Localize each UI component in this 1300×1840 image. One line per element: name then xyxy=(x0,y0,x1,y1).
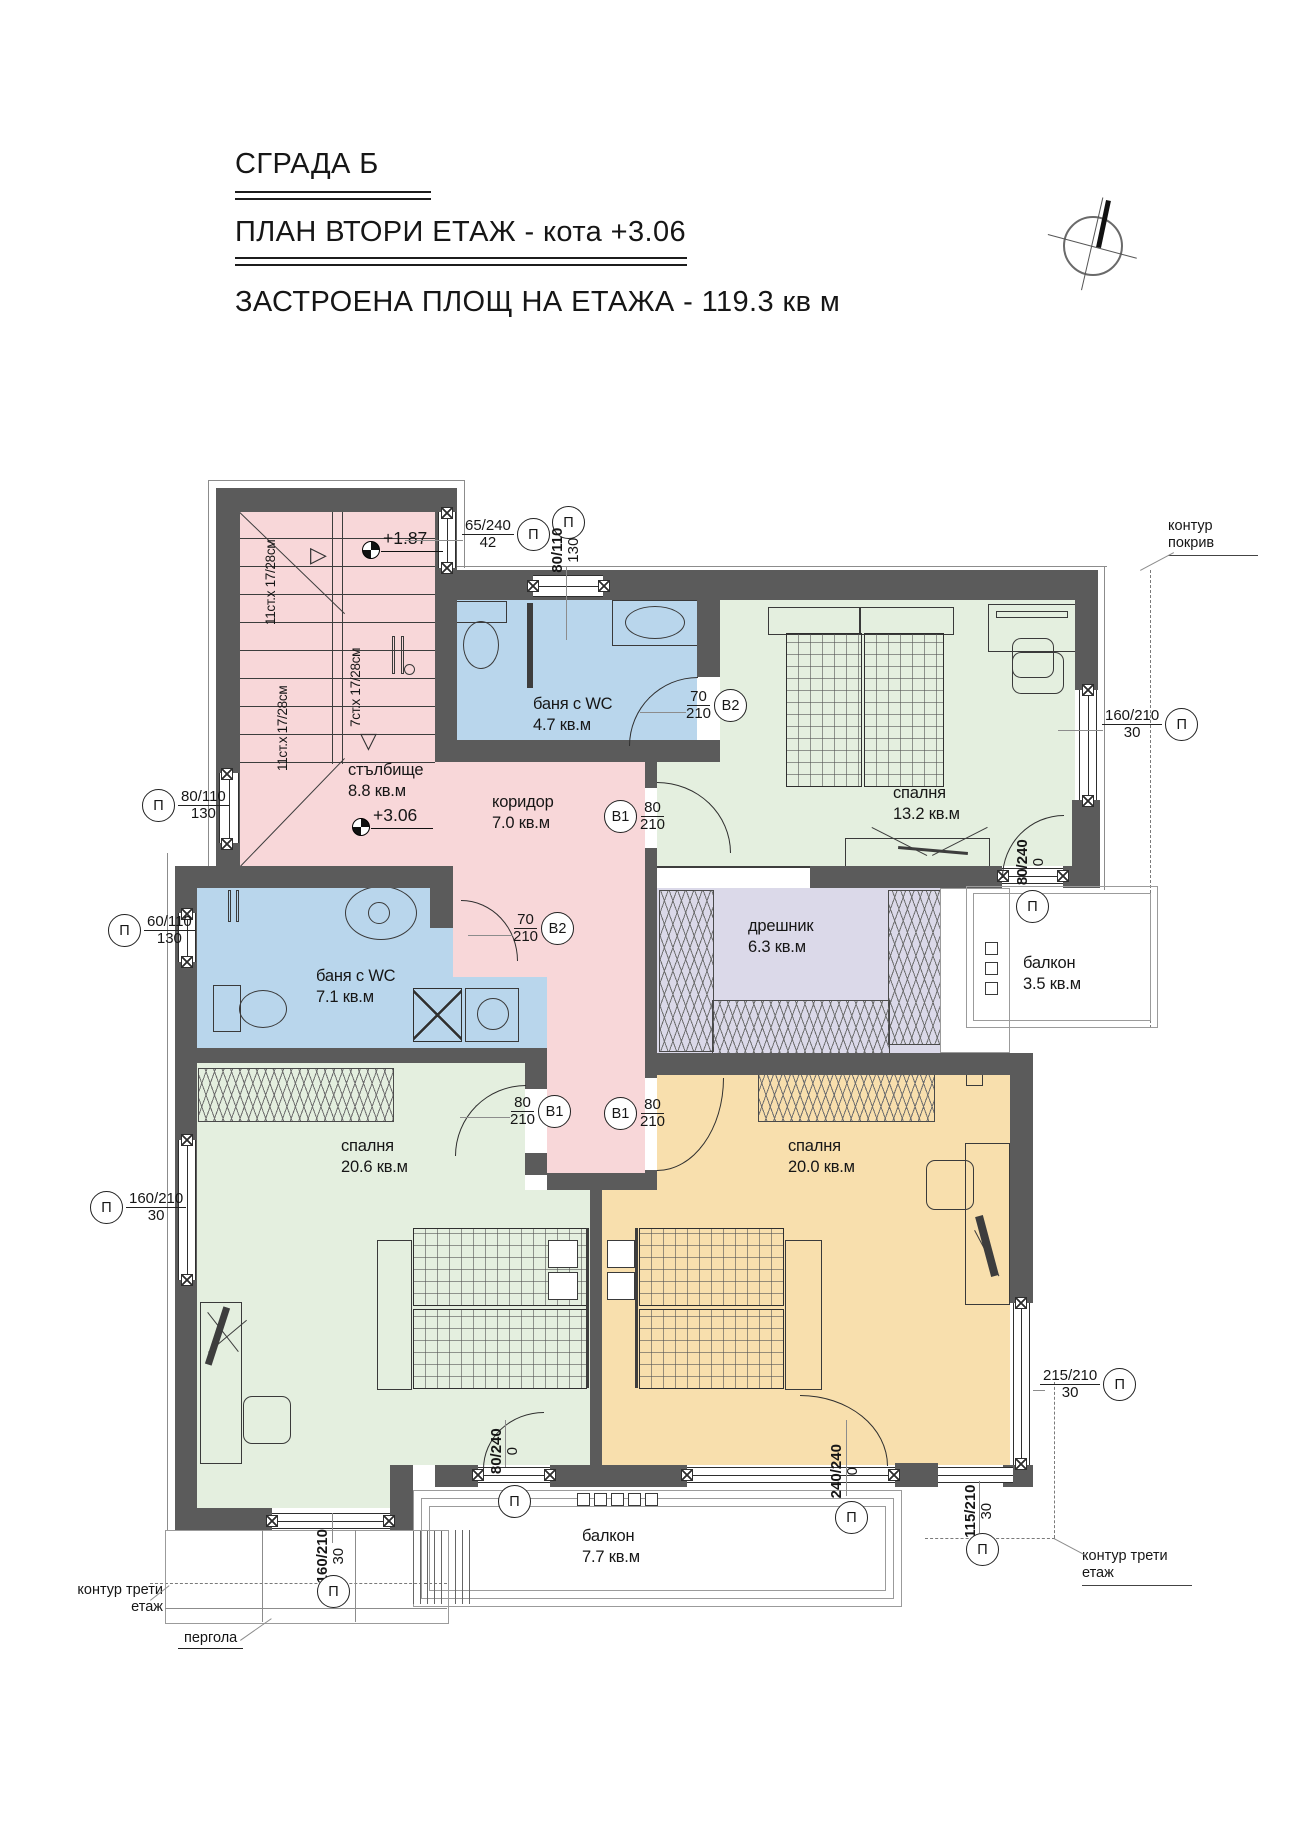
pillow xyxy=(607,1272,635,1300)
leader xyxy=(1058,730,1103,731)
mullion-box xyxy=(441,562,453,574)
sink-basin xyxy=(625,606,685,639)
elevation-marker-icon xyxy=(362,541,380,559)
opening-symbol-80-240-bottom: П xyxy=(498,1485,531,1518)
mullion-box xyxy=(181,1134,193,1146)
room-label-bedroom-right: спалня20.0 кв.м xyxy=(788,1136,855,1177)
pergola-post xyxy=(628,1493,641,1506)
opening-label-80-110-left: 80/110130 П xyxy=(142,789,229,822)
headboard xyxy=(635,1228,638,1388)
wardrobe xyxy=(198,1068,394,1122)
toilet-tank xyxy=(455,601,507,623)
pergola-post xyxy=(577,1493,590,1506)
room-label-balcony-bottom: балкон7.7 кв.м xyxy=(582,1526,640,1567)
wall xyxy=(525,1153,547,1175)
chair xyxy=(1012,652,1064,694)
pergola-post xyxy=(611,1493,624,1506)
pergola-post xyxy=(645,1493,658,1506)
door-label-b2-left: 70210 B2 xyxy=(513,912,574,945)
pergola-frame xyxy=(165,1530,449,1624)
mullion-box xyxy=(221,768,233,780)
wardrobe xyxy=(888,890,942,1045)
roof-contour-label: контур покрив xyxy=(1168,518,1258,556)
window-160-210-right xyxy=(1079,690,1097,800)
roof-contour-line xyxy=(208,480,465,481)
floor-plan-sheet: СГРАДА Б ПЛАН ВТОРИ ЕТАЖ - кота +3.06 ЗА… xyxy=(0,0,1300,1840)
wall xyxy=(197,1048,547,1063)
toilet-bowl xyxy=(463,621,499,669)
wall xyxy=(547,1173,657,1190)
opening-label-60-110-left: 60/110130 П xyxy=(108,914,195,947)
headboard xyxy=(860,607,954,635)
bed-bench xyxy=(785,1240,822,1390)
mullion-box xyxy=(1015,1297,1027,1309)
mullion-box xyxy=(221,838,233,850)
mullion-box xyxy=(598,580,610,592)
leader xyxy=(566,567,567,640)
door-label-b1-bedroom-top: 80210 B1 xyxy=(604,800,665,833)
mullion-box xyxy=(544,1469,556,1481)
title-underline xyxy=(235,198,431,200)
door-label-b1-bedroom-right: 80210 B1 xyxy=(604,1097,665,1130)
stair-flight-label: 7ст.х 17/28см xyxy=(348,648,363,727)
wall xyxy=(1010,1053,1033,1303)
stair-arrow-up-icon: ▷ xyxy=(310,542,327,568)
room-bedroom-left-ext xyxy=(197,1465,390,1508)
bath-partition xyxy=(527,603,533,688)
wall xyxy=(430,888,453,928)
mullion-box xyxy=(888,1469,900,1481)
opening-label-80-240-bottom: 80/2400 xyxy=(489,1421,521,1481)
mullion-box xyxy=(266,1515,278,1527)
bed-double xyxy=(639,1309,784,1389)
opening-symbol-160-210-bottom: П xyxy=(317,1575,350,1608)
title-underline xyxy=(235,264,687,266)
pillow xyxy=(607,1240,635,1268)
sink-drain xyxy=(368,902,390,924)
towel-rail xyxy=(392,636,395,674)
tv-dresser xyxy=(845,838,990,868)
leader xyxy=(1140,552,1174,571)
leader xyxy=(460,1117,510,1118)
room-label-dressing: дрешник6.3 кв.м xyxy=(748,916,813,957)
area-title: ЗАСТРОЕНА ПЛОЩ НА ЕТАЖА - 119.3 кв м xyxy=(235,286,840,319)
chair xyxy=(243,1396,291,1444)
mullion-box xyxy=(1082,684,1094,696)
towel-hook xyxy=(404,664,415,675)
balcony-bottom-railing xyxy=(429,1506,886,1591)
wall xyxy=(645,740,657,788)
window-215-210 xyxy=(1013,1303,1030,1465)
wall xyxy=(175,1508,272,1530)
bed-double xyxy=(413,1309,587,1389)
pergola-rail xyxy=(165,1608,447,1609)
mullion-box xyxy=(383,1515,395,1527)
door-label-b2-top: 70210 B2 xyxy=(686,689,747,722)
room-label-bath-left: баня с WC7.1 кв.м xyxy=(316,966,395,1007)
room-label-bedroom-top: спалня13.2 кв.м xyxy=(893,783,960,824)
stair-arrow-down-icon: ▽ xyxy=(360,728,377,754)
bed-double xyxy=(639,1228,784,1306)
wardrobe xyxy=(712,1000,890,1055)
mullion-box xyxy=(181,1274,193,1286)
opening-label-160-210-right: 160/21030 П xyxy=(1102,708,1198,741)
wall xyxy=(590,1190,602,1465)
leader xyxy=(640,712,686,713)
opening-label-240-240: 240/2400 xyxy=(829,1441,861,1501)
wall xyxy=(645,848,657,888)
mullion-box xyxy=(1015,1458,1027,1470)
desk-shelf xyxy=(996,611,1068,618)
opening-symbol-240-240: П xyxy=(835,1501,868,1534)
headboard xyxy=(768,607,860,635)
pillow xyxy=(548,1240,578,1268)
toilet-bowl xyxy=(239,990,287,1028)
third-floor-contour-dashed xyxy=(1054,1382,1055,1538)
wall xyxy=(810,866,1002,888)
shower-tray xyxy=(413,988,462,1042)
towel-rail xyxy=(228,890,231,922)
leader xyxy=(1053,1538,1085,1556)
wall xyxy=(1075,600,1098,690)
mullion-box xyxy=(1082,795,1094,807)
title-underline xyxy=(235,191,431,193)
room-label-staircase: стълбище8.8 кв.м xyxy=(348,760,423,801)
wall xyxy=(218,488,457,512)
room-open-edge xyxy=(657,866,810,868)
opening-label-115-210: 115/21030 xyxy=(963,1481,995,1541)
pergola-post xyxy=(594,1493,607,1506)
plan-title: ПЛАН ВТОРИ ЕТАЖ - кота +3.06 xyxy=(235,216,686,249)
building-title: СГРАДА Б xyxy=(235,148,379,181)
mullion-box xyxy=(527,580,539,592)
room-label-corridor: коридор7.0 кв.м xyxy=(492,792,554,833)
elevation-label-main: +3.06 xyxy=(371,805,433,829)
title-underline xyxy=(235,257,687,259)
opening-label-65-240: 65/24042 П xyxy=(462,518,550,551)
stair-flight-label: 11ст.х 17/28см xyxy=(275,686,290,771)
headboard xyxy=(586,1228,589,1388)
leader xyxy=(405,540,463,541)
opening-symbol-115-210: П xyxy=(966,1533,999,1566)
mullion-box xyxy=(472,1469,484,1481)
wardrobe xyxy=(758,1068,935,1122)
wall xyxy=(550,1465,687,1487)
towel-rail xyxy=(236,890,239,922)
wall xyxy=(645,888,657,1078)
chair xyxy=(926,1160,974,1210)
sliding-door-240-240 xyxy=(687,1467,895,1483)
wall xyxy=(895,1463,938,1487)
leader xyxy=(468,935,513,936)
mullion-box xyxy=(181,956,193,968)
bed-twin xyxy=(864,633,944,787)
mullion-box xyxy=(441,507,453,519)
wardrobe xyxy=(659,890,714,1052)
elevation-marker-icon xyxy=(352,818,370,836)
opening-symbol-80-240-right: П xyxy=(1016,890,1049,923)
opening-label-80-240-right: 80/2400 xyxy=(1015,832,1047,892)
room-label-bath-top: баня с WC4.7 кв.м xyxy=(533,694,612,735)
mullion-box xyxy=(681,1469,693,1481)
room-label-bedroom-left: спалня20.6 кв.м xyxy=(341,1136,408,1177)
stair-flight-label: 11ст.х 17/28см xyxy=(263,540,278,625)
wall xyxy=(525,1063,547,1089)
opening-label-160-210-left: 160/21030 П xyxy=(90,1191,186,1224)
bed-bench xyxy=(377,1240,412,1390)
washing-machine-drum xyxy=(477,998,509,1030)
wall xyxy=(697,600,720,677)
wall xyxy=(240,866,453,888)
pergola-label: пергола xyxy=(178,1630,243,1649)
toilet-tank xyxy=(213,985,241,1032)
opening-label-215-210: 215/21030 П xyxy=(1040,1368,1136,1401)
third-floor-contour-label-right: контур трети етаж xyxy=(1082,1548,1192,1586)
bed-twin xyxy=(786,633,862,787)
door-label-b1-bedroom-left: 80210 B1 xyxy=(510,1095,571,1128)
wall xyxy=(435,600,457,762)
room-label-balcony-right: балкон3.5 кв.м xyxy=(1023,953,1081,994)
pillow xyxy=(548,1272,578,1300)
wall xyxy=(657,1053,1010,1075)
stair-rail xyxy=(332,510,343,764)
